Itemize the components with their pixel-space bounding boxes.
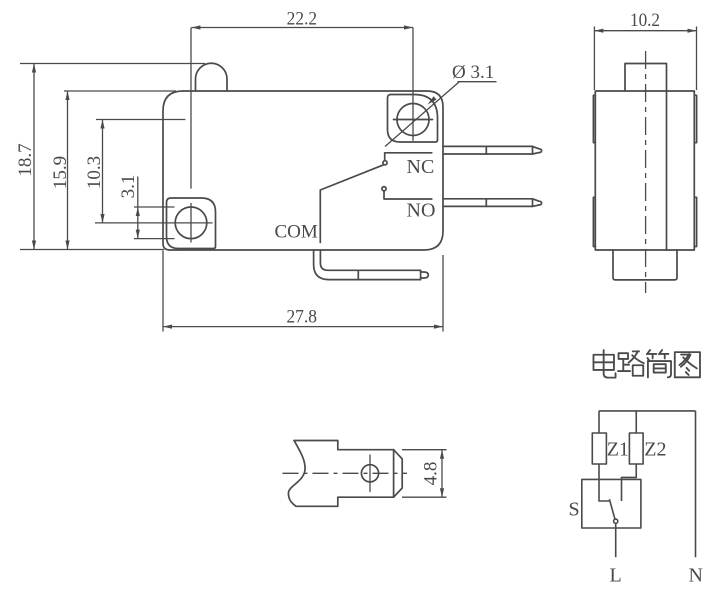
svg-text:10.3: 10.3 — [84, 156, 105, 189]
svg-text:Z1: Z1 — [607, 439, 629, 461]
svg-text:NO: NO — [407, 199, 436, 221]
svg-text:15.9: 15.9 — [50, 156, 71, 189]
svg-text:Z2: Z2 — [644, 439, 666, 461]
svg-text:L: L — [609, 565, 621, 587]
svg-text:18.7: 18.7 — [15, 143, 36, 176]
svg-text:10.2: 10.2 — [630, 10, 660, 31]
svg-text:Ø 3.1: Ø 3.1 — [452, 62, 494, 83]
svg-text:N: N — [688, 565, 702, 587]
svg-text:COM: COM — [275, 222, 318, 243]
svg-text:27.8: 27.8 — [286, 306, 317, 327]
svg-text:3.1: 3.1 — [118, 175, 139, 199]
svg-text:S: S — [569, 499, 580, 521]
svg-text:4.8: 4.8 — [421, 462, 442, 486]
svg-text:22.2: 22.2 — [287, 9, 318, 30]
svg-text:NC: NC — [407, 156, 435, 178]
